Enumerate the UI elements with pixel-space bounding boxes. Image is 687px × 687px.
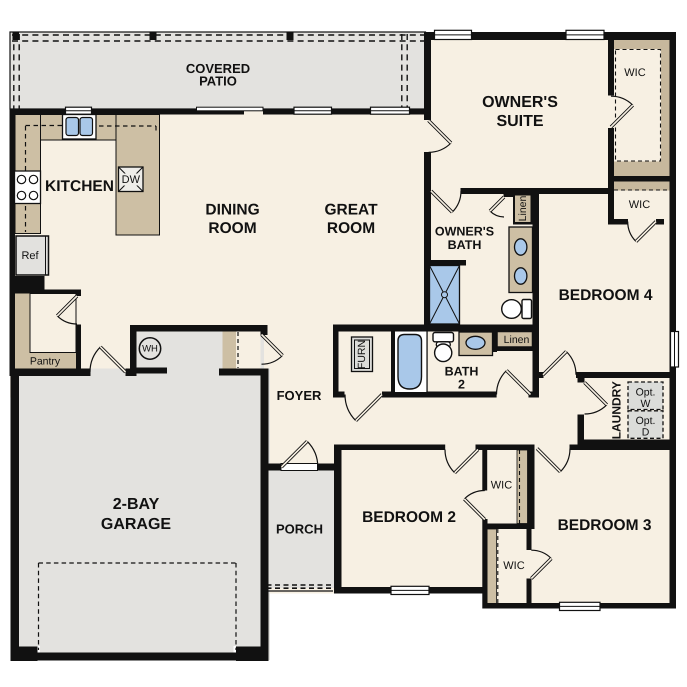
svg-text:PATIO: PATIO: [199, 74, 237, 89]
svg-text:WIC: WIC: [624, 67, 645, 79]
svg-text:Ref: Ref: [21, 250, 39, 262]
svg-text:SUITE: SUITE: [496, 113, 543, 130]
svg-text:WH: WH: [142, 344, 158, 355]
svg-text:2: 2: [458, 378, 465, 392]
svg-text:Linen: Linen: [517, 196, 529, 222]
svg-text:Linen: Linen: [504, 334, 530, 346]
svg-text:Opt.: Opt.: [636, 387, 656, 399]
svg-text:2-BAY: 2-BAY: [113, 496, 160, 513]
svg-text:Opt.: Opt.: [636, 415, 656, 427]
svg-text:ROOM: ROOM: [327, 220, 375, 237]
svg-text:FOYER: FOYER: [277, 388, 322, 403]
svg-text:GARAGE: GARAGE: [101, 516, 172, 533]
svg-text:FURN: FURN: [356, 340, 368, 369]
svg-text:BEDROOM 4: BEDROOM 4: [559, 287, 653, 304]
svg-text:D: D: [642, 427, 650, 439]
svg-text:WIC: WIC: [503, 560, 524, 572]
svg-text:OWNER'S: OWNER'S: [435, 225, 494, 239]
svg-text:DINING: DINING: [205, 202, 259, 219]
svg-text:Pantry: Pantry: [30, 356, 61, 368]
svg-text:KITCHEN: KITCHEN: [45, 178, 114, 195]
svg-text:ROOM: ROOM: [208, 220, 256, 237]
svg-text:PORCH: PORCH: [276, 522, 323, 537]
svg-text:WIC: WIC: [491, 480, 512, 492]
svg-text:DW: DW: [122, 174, 141, 186]
svg-text:WIC: WIC: [629, 199, 650, 211]
svg-text:BATH: BATH: [445, 365, 479, 379]
svg-text:BATH: BATH: [448, 238, 482, 252]
svg-text:BEDROOM 2: BEDROOM 2: [362, 509, 456, 526]
svg-text:W: W: [641, 398, 651, 410]
svg-text:BEDROOM 3: BEDROOM 3: [558, 517, 652, 534]
svg-text:LAUNDRY: LAUNDRY: [610, 381, 624, 439]
svg-text:OWNER'S: OWNER'S: [482, 94, 558, 111]
svg-text:GREAT: GREAT: [324, 202, 378, 219]
